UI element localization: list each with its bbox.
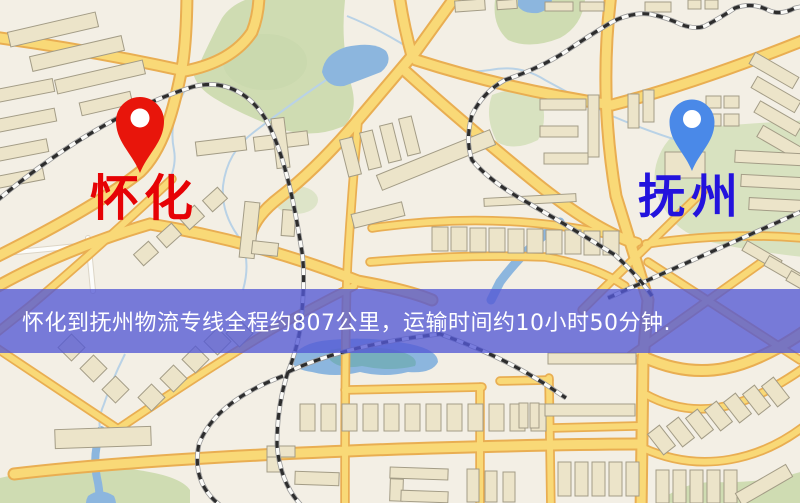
destination-label: 抚州 (638, 174, 744, 221)
map-screenshot: 怀化 抚州 怀化到抚州物流专线全程约807公里，运输时间约10小时50分钟. (0, 0, 800, 503)
banner-text: 怀化到抚州物流专线全程约807公里，运输时间约10小时50分钟. (0, 305, 671, 337)
origin-label: 怀化 (90, 174, 198, 223)
map-canvas[interactable] (0, 0, 800, 503)
route-banner: 怀化到抚州物流专线全程约807公里，运输时间约10小时50分钟. (0, 289, 800, 353)
